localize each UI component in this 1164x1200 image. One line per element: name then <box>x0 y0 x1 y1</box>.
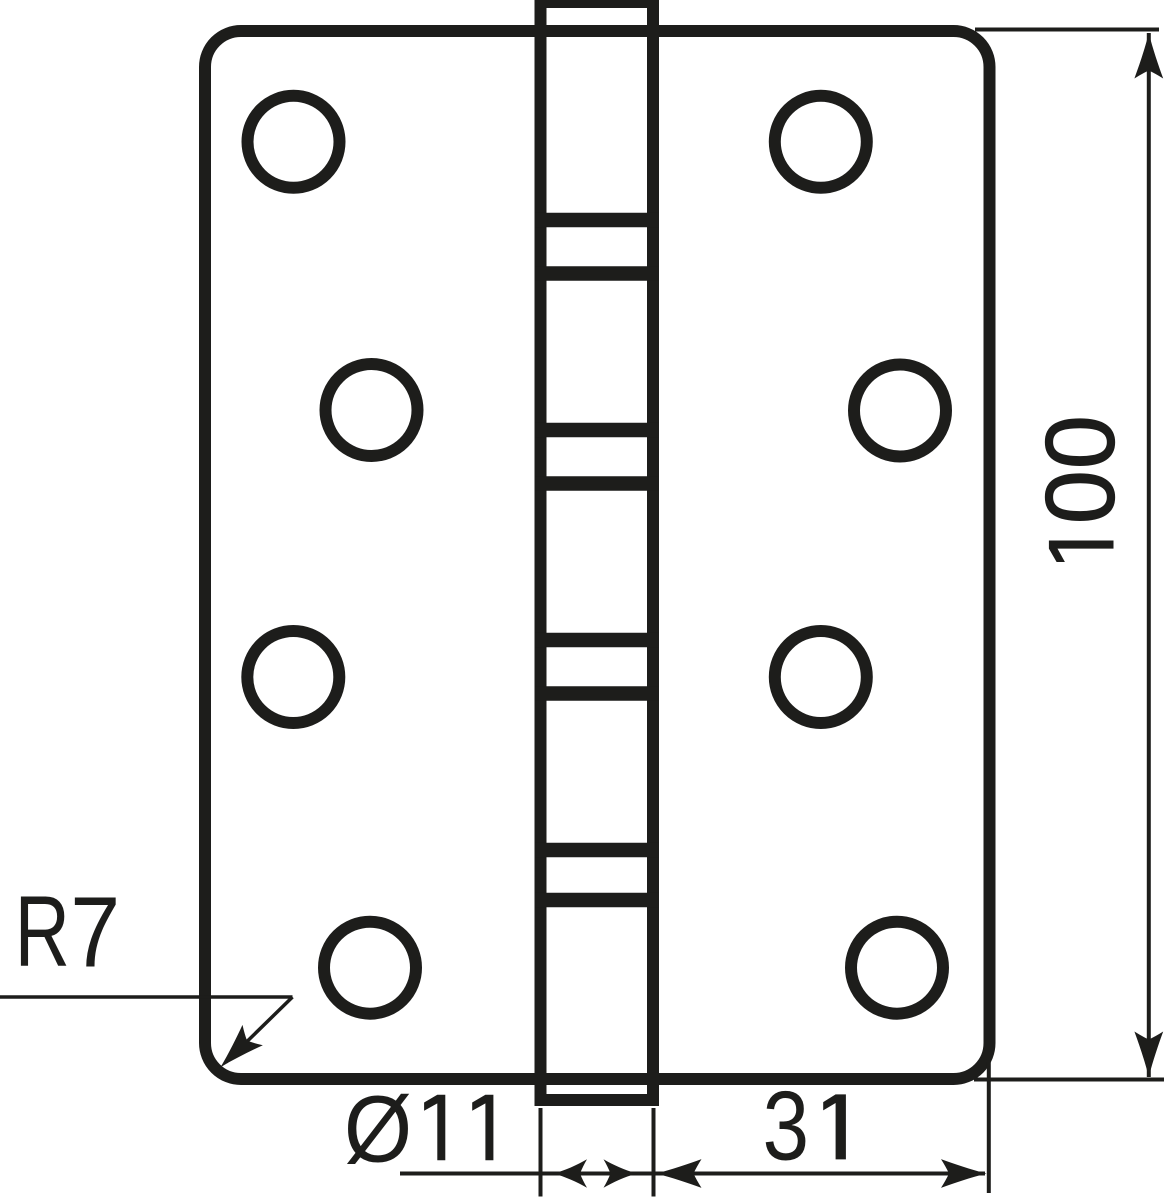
svg-text:R: R <box>15 874 70 986</box>
svg-text:0: 0 <box>1026 470 1135 524</box>
svg-text:0: 0 <box>1026 415 1135 469</box>
svg-text:3: 3 <box>763 1071 810 1181</box>
svg-text:Ø: Ø <box>344 1076 412 1182</box>
svg-text:7: 7 <box>70 877 120 989</box>
